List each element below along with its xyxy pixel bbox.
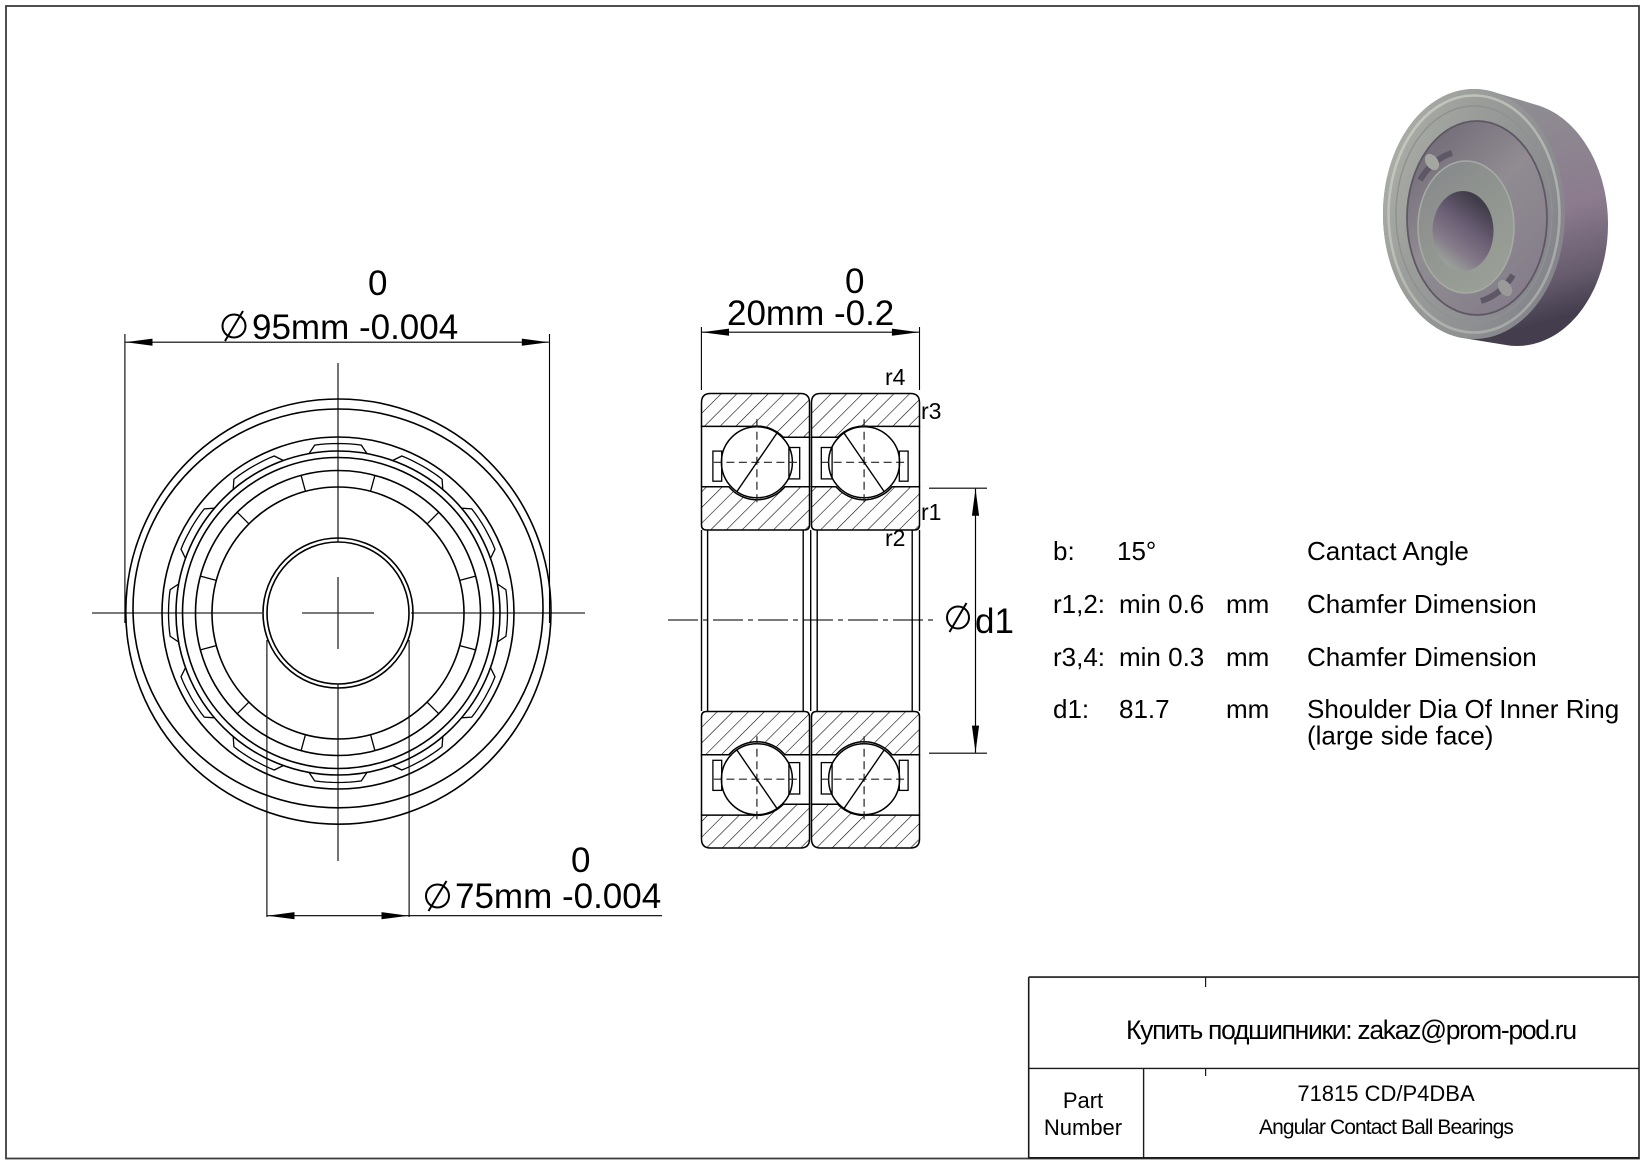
svg-text:min 0.3: min 0.3: [1119, 642, 1204, 672]
svg-text:95mm -0.004: 95mm -0.004: [252, 308, 458, 347]
svg-text:Angular Contact Ball Bearings: Angular Contact Ball Bearings: [1259, 1116, 1513, 1139]
svg-text:Chamfer Dimension: Chamfer Dimension: [1307, 589, 1537, 619]
svg-text:15°: 15°: [1117, 536, 1156, 566]
svg-text:0: 0: [571, 841, 590, 880]
svg-text:mm: mm: [1226, 694, 1269, 724]
svg-text:d1: d1: [975, 602, 1014, 641]
svg-text:81.7: 81.7: [1119, 694, 1170, 724]
svg-text:r3: r3: [921, 398, 941, 424]
svg-text:20mm -0.2: 20mm -0.2: [727, 294, 894, 333]
svg-text:r2: r2: [885, 525, 905, 551]
svg-text:71815 CD/P4DBA: 71815 CD/P4DBA: [1297, 1081, 1475, 1106]
svg-text:0: 0: [845, 262, 864, 301]
svg-text:Shoulder Dia Of Inner Ring: Shoulder Dia Of Inner Ring: [1307, 694, 1619, 724]
svg-text:min 0.6: min 0.6: [1119, 589, 1204, 619]
svg-text:(large side face): (large side face): [1307, 721, 1493, 751]
svg-text:b:: b:: [1053, 536, 1075, 566]
svg-text:Cantact Angle: Cantact Angle: [1307, 536, 1469, 566]
svg-text:0: 0: [368, 264, 387, 303]
svg-text:r1,2:: r1,2:: [1053, 589, 1105, 619]
svg-text:r1: r1: [921, 499, 941, 525]
svg-text:d1:: d1:: [1053, 694, 1089, 724]
svg-text:Part: Part: [1063, 1088, 1103, 1113]
svg-text:mm: mm: [1226, 589, 1269, 619]
svg-text:75mm -0.004: 75mm -0.004: [455, 877, 661, 916]
svg-text:Chamfer Dimension: Chamfer Dimension: [1307, 642, 1537, 672]
svg-text:r3,4:: r3,4:: [1053, 642, 1105, 672]
svg-text:Купить подшипники: zakaz@prom-: Купить подшипники: zakaz@prom-pod.ru: [1126, 1015, 1576, 1045]
svg-text:Number: Number: [1044, 1115, 1122, 1140]
svg-text:mm: mm: [1226, 642, 1269, 672]
svg-text:r4: r4: [885, 364, 906, 390]
